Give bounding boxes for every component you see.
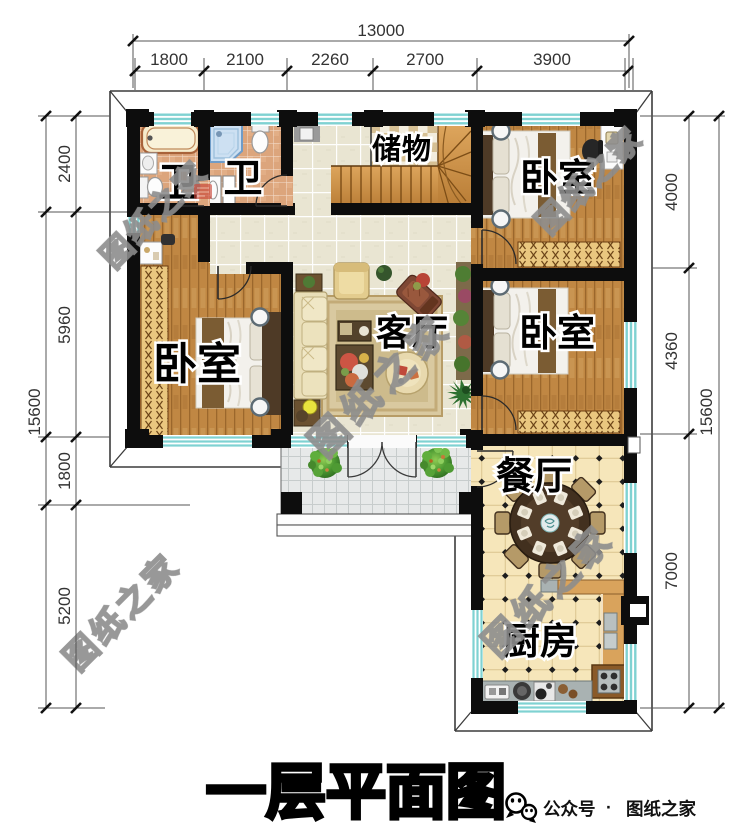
svg-text:5200: 5200 [55, 587, 74, 625]
svg-text:·: · [606, 797, 612, 817]
svg-text:卧室: 卧室 [519, 312, 595, 355]
svg-text:4360: 4360 [662, 332, 681, 370]
svg-text:15600: 15600 [25, 388, 44, 435]
svg-text:卫: 卫 [223, 158, 262, 201]
svg-text:一层平面图: 一层平面图 [206, 759, 506, 826]
svg-text:2400: 2400 [55, 145, 74, 183]
svg-text:公众号: 公众号 [543, 799, 596, 819]
svg-text:4000: 4000 [662, 173, 681, 211]
svg-text:2260: 2260 [311, 50, 349, 69]
svg-text:餐厅: 餐厅 [496, 456, 572, 498]
svg-text:3900: 3900 [533, 50, 571, 69]
svg-text:图纸之家: 图纸之家 [626, 799, 696, 819]
svg-text:储物: 储物 [372, 133, 432, 166]
svg-text:7000: 7000 [662, 552, 681, 590]
svg-text:1800: 1800 [55, 452, 74, 490]
svg-text:2100: 2100 [226, 50, 264, 69]
svg-text:15600: 15600 [697, 388, 716, 435]
svg-text:卧室: 卧室 [153, 339, 241, 389]
svg-text:13000: 13000 [357, 21, 404, 40]
svg-text:2700: 2700 [406, 50, 444, 69]
svg-text:5960: 5960 [55, 306, 74, 344]
svg-text:1800: 1800 [150, 50, 188, 69]
